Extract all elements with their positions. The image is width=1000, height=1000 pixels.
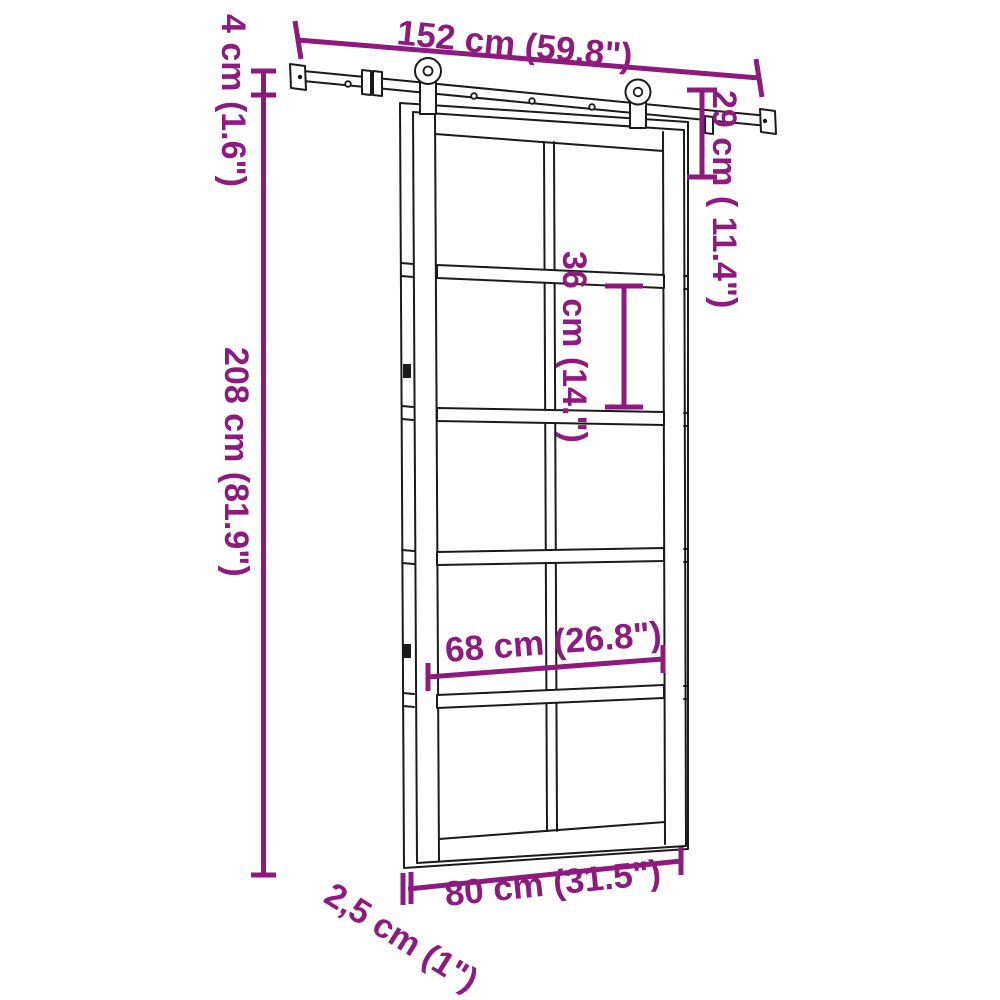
door-cross-rail-2 [437,408,664,425]
door [400,103,688,868]
rail-screw-2 [471,93,477,99]
rail-screw-4 [589,104,595,110]
dim-label-208: 208 cm (81.9") [217,347,255,577]
roller-left-hub [424,67,433,76]
rail-coupling-ring-1 [362,70,371,95]
dimension-door-height: 208 cm (81.9") [217,95,276,875]
door-front-face [413,112,686,863]
dim-label-29: 29 cm ( 11.4") [705,90,743,308]
rail-screw-1 [345,81,351,87]
rail-screw-3 [529,98,535,104]
dimension-track-drop: 4 cm (1.6") [214,14,276,187]
diagram-canvas: 152 cm (59.8") 4 cm (1.6") 208 cm (81.9"… [0,0,1000,1000]
roller-right [626,80,651,129]
door-cross-rail-3 [437,548,664,565]
roller-right-hub [634,88,643,97]
rail-end-screw-right [763,119,767,123]
dimension-diagram-svg: 152 cm (59.8") 4 cm (1.6") 208 cm (81.9"… [0,0,1000,1000]
dimension-hanger-height: 29 cm ( 11.4") [687,90,743,308]
rail-coupling-ring-2 [373,71,382,96]
rail-end-cap-right [760,109,776,134]
door-edge-fitting-lower [403,644,411,658]
dim-line-4 [251,71,276,95]
rail-end-screw-left [298,75,302,79]
dim-label-4: 4 cm (1.6") [214,14,252,187]
dim-label-36: 36 cm (14.") [555,251,593,443]
door-edge-fitting-upper [403,364,411,378]
